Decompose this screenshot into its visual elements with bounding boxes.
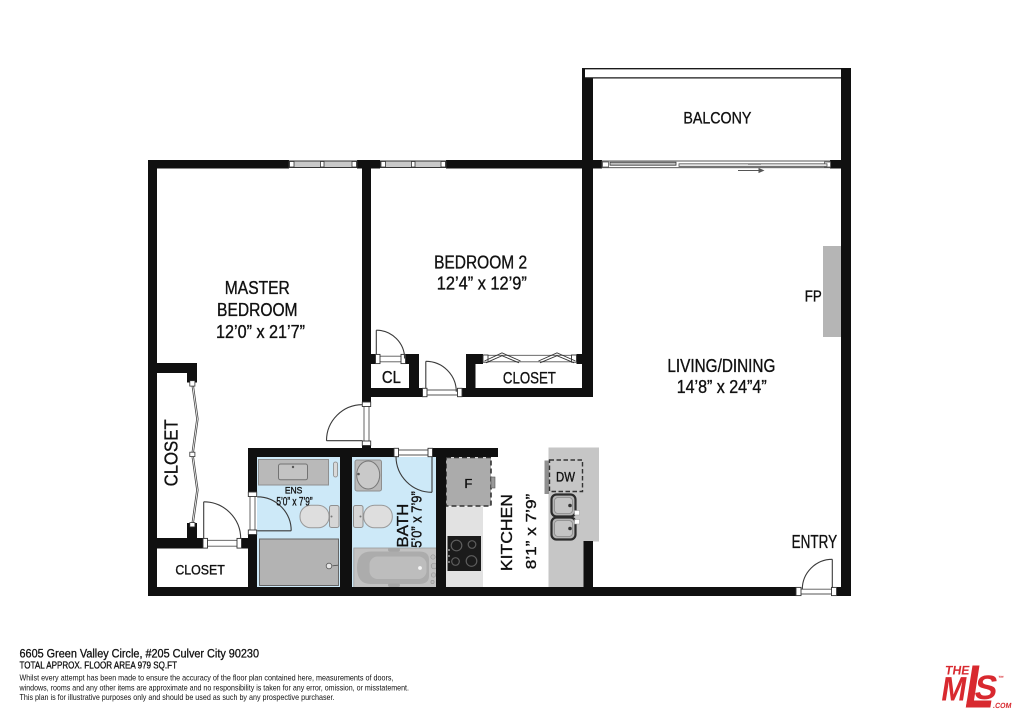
svg-text:Whilst every attempt has been: Whilst every attempt has been made to en…: [20, 672, 394, 682]
svg-text:12’0” x 21’7”: 12’0” x 21’7”: [216, 322, 305, 342]
svg-text:CLOSET: CLOSET: [161, 419, 182, 486]
svg-text:CLOSET: CLOSET: [175, 563, 225, 578]
svg-text:ENS: ENS: [285, 486, 303, 496]
svg-text:5’0” x 7’9”: 5’0” x 7’9”: [410, 491, 426, 548]
svg-text:™: ™: [997, 675, 1004, 682]
svg-text:This plan is for illustrative: This plan is for illustrative purposes o…: [20, 692, 335, 702]
svg-text:ENTRY: ENTRY: [792, 532, 838, 552]
svg-text:DW: DW: [556, 469, 575, 484]
svg-text:F: F: [464, 476, 472, 491]
svg-text:LIVING/DINING: LIVING/DINING: [667, 356, 775, 376]
svg-text:BEDROOM: BEDROOM: [217, 300, 298, 320]
svg-text:14’8” x 24”4”: 14’8” x 24”4”: [677, 377, 767, 397]
svg-text:FP: FP: [805, 289, 822, 306]
svg-text:BEDROOM 2: BEDROOM 2: [434, 252, 527, 272]
svg-text:12’4” x 12’9”: 12’4” x 12’9”: [437, 274, 527, 294]
svg-text:MASTER: MASTER: [225, 278, 290, 298]
svg-text:.COM: .COM: [992, 701, 1012, 710]
svg-text:KITCHEN: KITCHEN: [499, 494, 516, 571]
svg-text:8’1” x 7’9”: 8’1” x 7’9”: [523, 494, 540, 570]
svg-text:CLOSET: CLOSET: [503, 368, 556, 387]
svg-text:TOTAL APPROX. FLOOR AREA 979 S: TOTAL APPROX. FLOOR AREA 979 SQ.FT: [20, 660, 178, 671]
svg-text:6605 Green Valley Circle, #205: 6605 Green Valley Circle, #205 Culver Ci…: [20, 647, 260, 661]
svg-text:CL: CL: [382, 367, 401, 387]
svg-text:5’0” x 7’9”: 5’0” x 7’9”: [276, 496, 312, 508]
svg-text:BALCONY: BALCONY: [683, 108, 751, 127]
